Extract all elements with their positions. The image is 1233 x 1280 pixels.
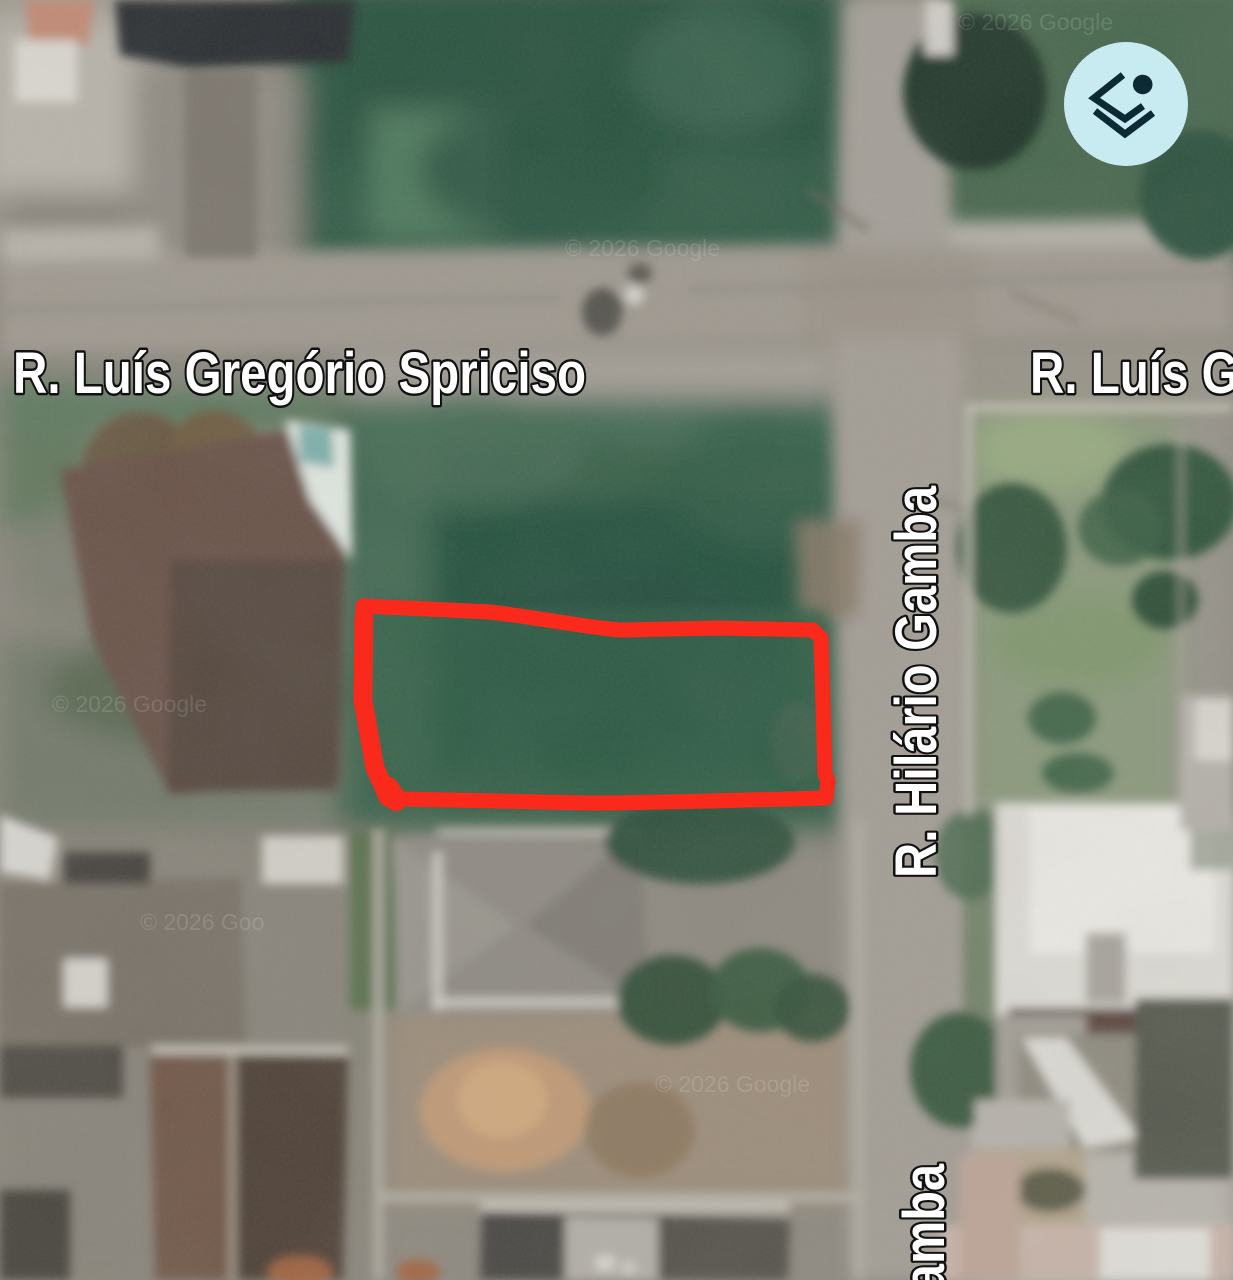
- svg-text:© 2026 Google: © 2026 Google: [565, 235, 720, 261]
- svg-text:© 2026 Google: © 2026 Google: [655, 1071, 810, 1097]
- svg-text:R. Hilário Gamba: R. Hilário Gamba: [884, 485, 949, 878]
- svg-text:© 2026 Google: © 2026 Google: [958, 9, 1113, 35]
- svg-text:© 2026 Google: © 2026 Google: [52, 691, 207, 717]
- svg-text:R. Luís Gregório Spriciso: R. Luís Gregório Spriciso: [13, 341, 586, 406]
- svg-text:R. Luís Gregório Spriciso: R. Luís Gregório Spriciso: [1030, 341, 1233, 406]
- svg-text:© 2026 Goo: © 2026 Goo: [140, 909, 264, 935]
- svg-text:R. Hilário Gamba: R. Hilário Gamba: [892, 1163, 957, 1280]
